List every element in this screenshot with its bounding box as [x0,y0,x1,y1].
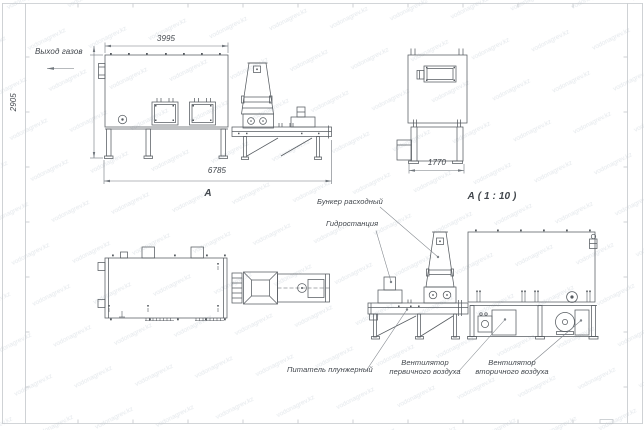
feeder-label: Питатель плунжерный [287,366,373,375]
hopper-label: Бункер расходный [317,198,383,207]
dim-total-length: 6785 [197,167,237,176]
primary-fan-label: Вентилятор первичного воздуха [383,359,467,376]
primary-fan-label-line2: первичного воздуха [383,368,467,377]
hydraulic-station-label: Гидростанция [326,220,378,229]
secondary-fan-label: Вентилятор вторичного воздуха [470,359,554,376]
view-a-label: А [198,190,218,199]
dim-top-width: 3995 [146,35,186,44]
gas-outlet-label: Выход газов [35,48,83,57]
dim-height: 2905 [10,87,19,117]
drawing-sheet: vodonagrev.kz vodonagrev.kz [0,0,644,430]
secondary-fan-label-line2: вторичного воздуха [470,368,554,377]
dim-end-width: 1770 [417,159,457,168]
view-a-scale-label: А ( 1 : 10 ) [452,193,532,202]
